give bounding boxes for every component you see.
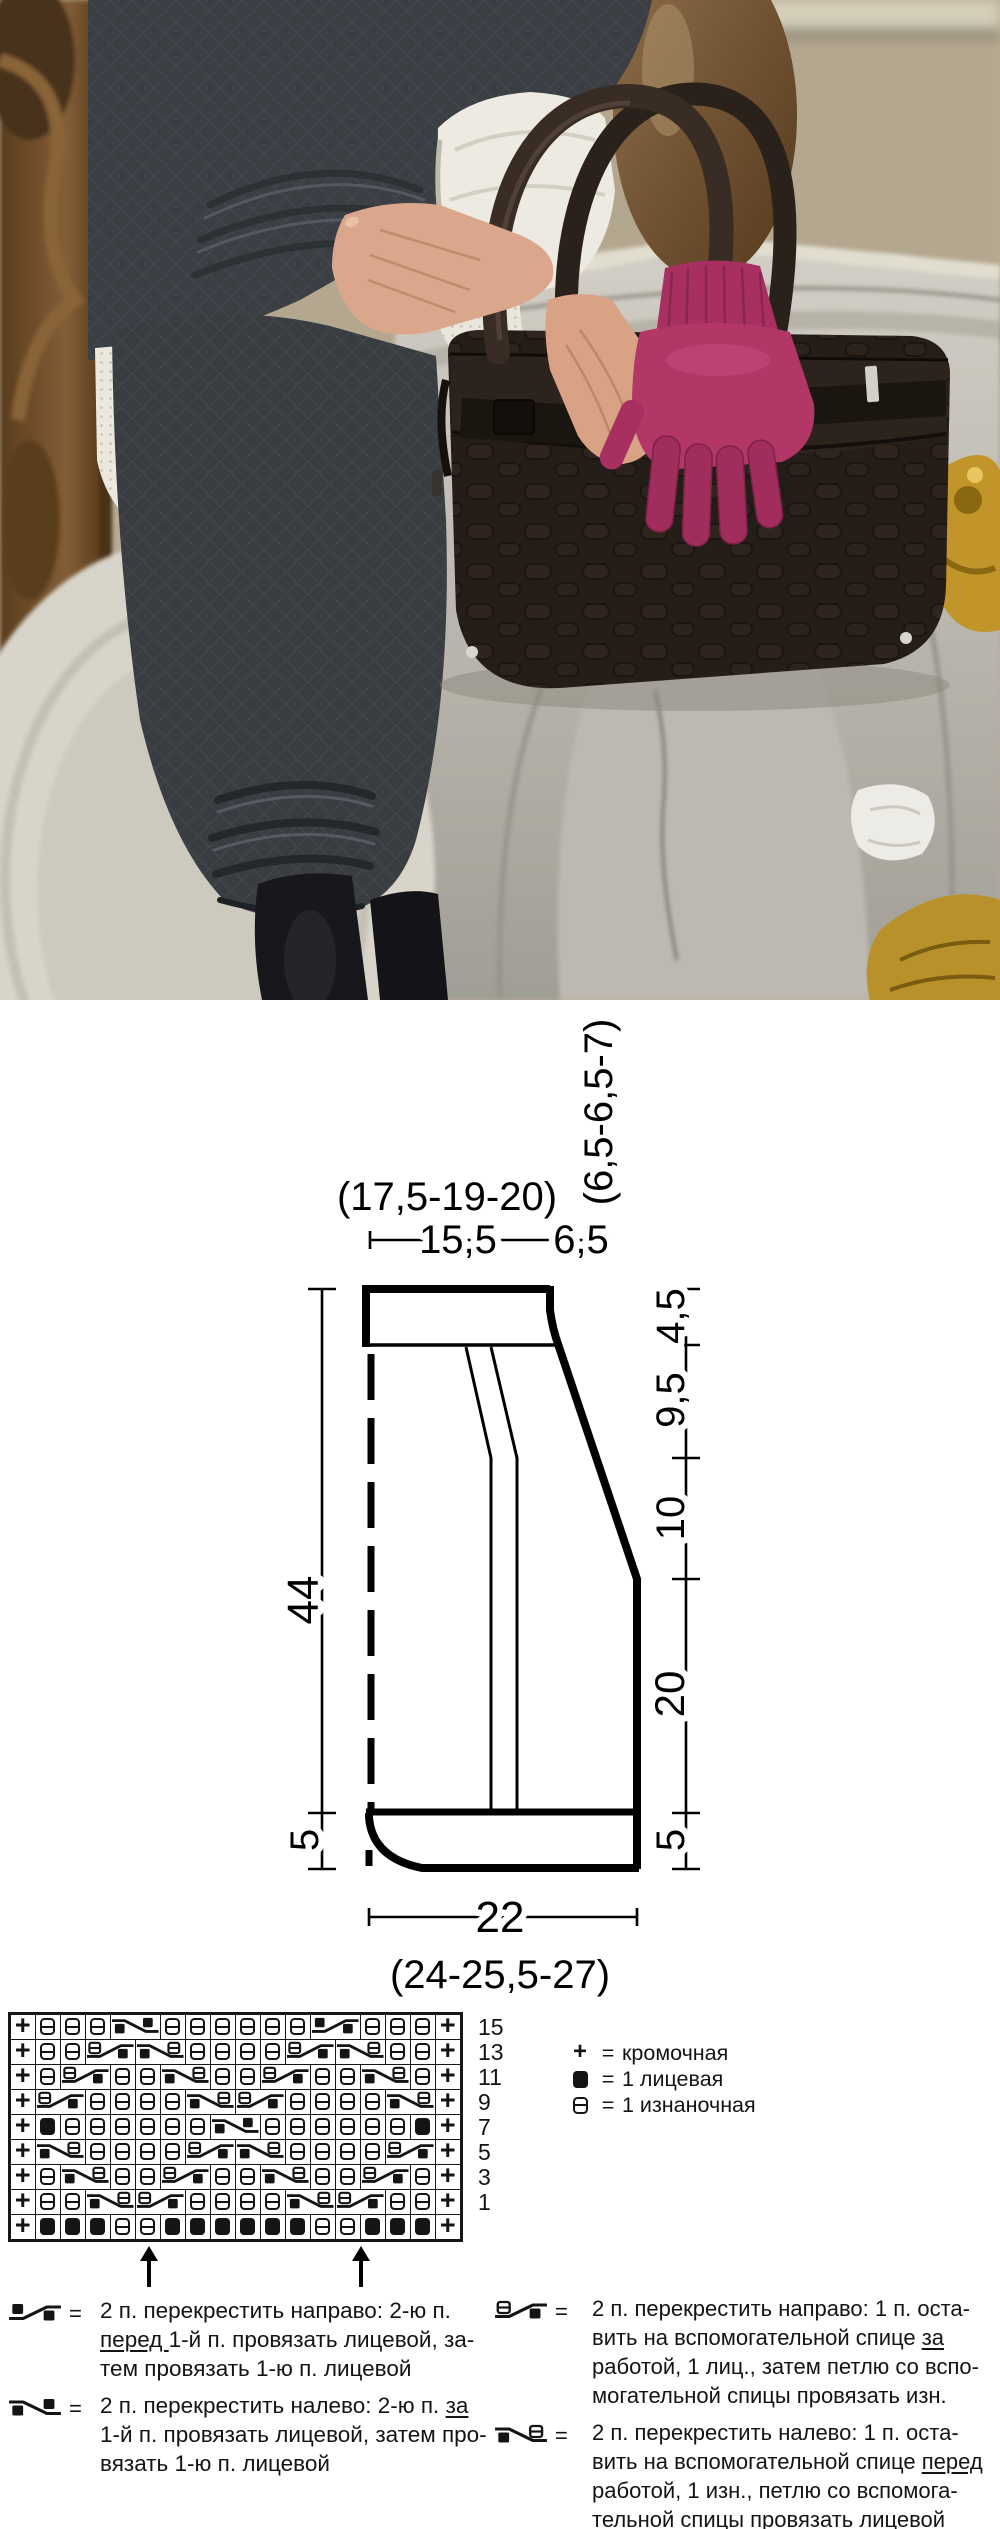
chart-cell-lpc [286,2190,335,2214]
chart-cell-e: + [11,2040,35,2064]
chart-row-numbers: 15131197531 [478,2012,538,2244]
chart-cell-p [236,2190,260,2214]
chart-cell-k [211,2215,235,2239]
chart-cell-p [86,2090,110,2114]
chart-cell-p [361,2090,385,2114]
chart-cell-e: + [11,2115,35,2139]
purl-stitch-icon [573,2097,588,2114]
chart-cell-p [286,2140,310,2164]
chart-cell-p [261,2015,285,2039]
chart-cell-p [311,2215,335,2239]
legend-label: 1 лицевая [622,2067,723,2092]
chart-cell-p [236,2015,260,2039]
chart-cell-e: + [11,2165,35,2189]
chart-cell-e: + [436,2065,460,2089]
chart-cell-p [336,2140,360,2164]
instruction-text: 2 п. перекрестить налево: 2-ю п. за1-й п… [100,2391,487,2478]
chart-cell-p [136,2065,160,2089]
chart-cell-p [411,2165,435,2189]
chart-cell-e: + [436,2190,460,2214]
dim-left-hem: 5 [283,1829,327,1851]
chart-cell-p [261,2115,285,2139]
legend-item-purl: = 1 изнаночная [566,2092,756,2118]
chart-cell-e: + [436,2090,460,2114]
chart-cell-p [186,2190,210,2214]
dim-top-shoulder: 6,5 [553,1218,609,1262]
chart-cell-p [211,2015,235,2039]
chart-cell-p [136,2140,160,2164]
chart-cell-k [386,2215,410,2239]
edge-stitch-icon: + [573,2040,587,2064]
chart-cell-k [186,2215,210,2239]
chart-cell-e: + [11,2015,35,2039]
chart-cell-lpc [236,2140,285,2164]
cable-symbol-icon: = [494,2294,592,2326]
chart-cell-rpc [61,2065,110,2089]
dim-right-middle: 10 [649,1496,693,1541]
knitting-pattern-page: (17,5-19-20) 15,5 6,5 (6,5-6,5-7) 4,5 9,… [0,0,1000,2529]
chart-cell-e: + [11,2090,35,2114]
chart-cell-p [111,2065,135,2089]
chart-cell-p [36,2165,60,2189]
chart-cell-lpc [261,2165,310,2189]
chart-cell-p [61,2190,85,2214]
dim-left-height: 44 [279,1576,328,1625]
chart-cell-e: + [11,2140,35,2164]
sleeve-schematic-section: (17,5-19-20) 15,5 6,5 (6,5-6,5-7) 4,5 9,… [0,1000,1000,2010]
legend-label: кромочная [622,2041,728,2066]
chart-cell-p [386,2015,410,2039]
chart-cell-p [111,2090,135,2114]
sleeve-schematic: (17,5-19-20) 15,5 6,5 (6,5-6,5-7) 4,5 9,… [0,1000,1000,2010]
chart-cell-rc [311,2015,360,2039]
cable-symbol-icon: = [8,2296,100,2328]
size-label-bottom: (24-25,5-27) [390,1953,610,1997]
chart-cell-k [361,2215,385,2239]
chart-cell-lpc [386,2090,435,2114]
chart-cell-p [311,2115,335,2139]
size-label-top: (17,5-19-20) [337,1175,557,1219]
chart-cell-p [111,2165,135,2189]
chart-cell-p [311,2065,335,2089]
chart-cell-p [161,2115,185,2139]
chart-cell-p [61,2040,85,2064]
chart-cell-p [386,2190,410,2214]
chart-cell-p [411,2065,435,2089]
chart-cell-e: + [11,2065,35,2089]
chart-cell-p [361,2015,385,2039]
chart-cell-rpc [161,2165,210,2189]
chart-cell-p [261,2040,285,2064]
chart-cell-e: + [436,2040,460,2064]
chart-cell-p [161,2015,185,2039]
chart-cell-lc [111,2015,160,2039]
chart-cell-rpc [386,2140,435,2164]
chart-cell-p [336,2215,360,2239]
instruction-text: 2 п. перекрестить направо: 1 п. оста-вит… [592,2294,979,2410]
chart-cell-k [261,2215,285,2239]
chart-cell-lc [211,2115,260,2139]
chart-cell-p [311,2090,335,2114]
instruction-text: 2 п. перекрестить направо: 2-ю п.перед 1… [100,2296,474,2383]
chart-cell-p [136,2115,160,2139]
chart-cell-p [361,2140,385,2164]
chart-cell-p [36,2065,60,2089]
dim-top-width: 15,5 [419,1218,497,1262]
chart-cell-k [61,2215,85,2239]
stitch-instruction-lpc: =2 п. перекрестить налево: 1 п. оста-вит… [494,2418,996,2529]
chart-cell-e: + [11,2190,35,2214]
chart-cell-e: + [11,2215,35,2239]
chart-cell-k [411,2115,435,2139]
legend-label: 1 изнаночная [622,2093,756,2118]
chart-cell-p [361,2115,385,2139]
chart-cell-p [311,2140,335,2164]
bag-stud [466,646,478,658]
chart-cell-p [161,2140,185,2164]
chart-cell-p [136,2090,160,2114]
chart-cell-p [386,2040,410,2064]
chart-cell-p [86,2115,110,2139]
chart-row-number: 3 [478,2165,491,2190]
chart-cell-p [211,2165,235,2189]
chart-cell-k [86,2215,110,2239]
repeat-arrow-right [352,2246,370,2287]
chart-cell-lpc [361,2065,410,2089]
chart-cell-p [36,2190,60,2214]
chart-cell-p [336,2115,360,2139]
chart-cell-p [36,2040,60,2064]
chart-cell-p [36,2015,60,2039]
chart-cell-rpc [36,2090,85,2114]
chart-cell-p [186,2015,210,2039]
dim-right-hem: 5 [649,1829,693,1851]
size-label-side: (6,5-6,5-7) [577,1019,621,1206]
chart-cell-lpc [186,2090,235,2114]
chart-cell-p [61,2115,85,2139]
chart-cell-lpc [161,2065,210,2089]
chart-cell-rpc [336,2190,385,2214]
instruction-text: 2 п. перекрестить налево: 1 п. оста-вить… [592,2418,983,2529]
chart-cell-k [411,2215,435,2239]
chart-row-number: 11 [478,2065,502,2090]
chart-cell-p [136,2165,160,2189]
chart-cell-p [211,2190,235,2214]
dim-right-upper: 9,5 [649,1372,693,1428]
chart-row-number: 9 [478,2090,491,2115]
chart-cell-rpc [286,2040,335,2064]
legend-item-edge: + = кромочная [566,2040,756,2066]
chart-cell-p [336,2165,360,2189]
chart-cell-rpc [361,2165,410,2189]
chart-cell-p [336,2065,360,2089]
chart-cell-p [161,2090,185,2114]
chart-cell-e: + [436,2215,460,2239]
chart-cell-k [36,2215,60,2239]
chart-cell-rpc [236,2090,285,2114]
chart-cell-lpc [336,2040,385,2064]
chart-legend: + = кромочная = 1 лицевая = 1 изнаночная [566,2040,756,2118]
chart-cell-p [136,2215,160,2239]
chart-cell-p [186,2040,210,2064]
chart-cell-p [411,2190,435,2214]
chart-cell-p [286,2015,310,2039]
chart-cell-lpc [36,2140,85,2164]
knit-stitch-icon [573,2071,588,2088]
chart-cell-e: + [436,2165,460,2189]
chart-cell-k [36,2115,60,2139]
chart-cell-p [286,2115,310,2139]
chart-cell-lpc [86,2190,135,2214]
chart-cell-p [336,2090,360,2114]
chart-cell-k [286,2215,310,2239]
chart-cell-e: + [436,2015,460,2039]
chart-cell-p [386,2115,410,2139]
chart-cell-p [111,2140,135,2164]
dim-bottom-width: 22 [476,1893,525,1942]
knitting-chart-grid: ++++++++++++++++++ [8,2012,463,2242]
instructions-right-column: =2 п. перекрестить направо: 1 п. оста-ви… [494,2294,996,2529]
chart-cell-rpc [261,2065,310,2089]
stitch-instruction-rc: =2 п. перекрестить направо: 2-ю п.перед … [8,2296,476,2383]
chart-cell-p [61,2015,85,2039]
chart-cell-p [236,2165,260,2189]
plastic-scrap [851,784,935,860]
instructions-left-column: =2 п. перекрестить направо: 2-ю п.перед … [8,2296,476,2478]
fashion-photo [0,0,1000,1000]
chart-cell-k [236,2215,260,2239]
chart-cell-p [211,2065,235,2089]
chart-row-number: 7 [478,2115,491,2140]
chart-cell-rpc [86,2040,135,2064]
chart-cell-p [211,2040,235,2064]
dim-right-top: 4,5 [649,1288,693,1344]
schematic-outline [366,1286,639,1869]
bag-stud [900,632,912,644]
chart-cell-p [411,2015,435,2039]
chart-cell-rpc [186,2140,235,2164]
chart-cell-e: + [436,2140,460,2164]
chart-cell-rpc [136,2190,185,2214]
cable-symbol-icon: = [8,2391,100,2423]
stitch-instruction-rpc: =2 п. перекрестить направо: 1 п. оста-ви… [494,2294,996,2410]
dim-right-lower: 20 [646,1671,693,1718]
chart-cell-lpc [61,2165,110,2189]
chart-row-number: 13 [478,2040,504,2065]
legend-item-knit: = 1 лицевая [566,2066,756,2092]
chart-cell-p [111,2115,135,2139]
tights [255,873,448,1000]
cable-symbol-icon: = [494,2418,592,2450]
chart-cell-e: + [436,2115,460,2139]
stitch-instruction-lc: =2 п. перекрестить налево: 2-ю п. за1-й … [8,2391,476,2478]
chart-cell-lpc [136,2040,185,2064]
chart-cell-p [261,2190,285,2214]
repeat-arrow-left [140,2246,158,2287]
photo-illustration [0,0,1000,1000]
chart-cell-p [236,2065,260,2089]
chart-cell-k [161,2215,185,2239]
chart-row-number: 5 [478,2140,491,2165]
chart-row-number: 1 [478,2190,491,2215]
chart-cell-p [311,2165,335,2189]
chart-cell-p [86,2015,110,2039]
bag-keeper-right [865,366,879,403]
chart-cell-p [236,2040,260,2064]
chart-cell-p [86,2140,110,2164]
chart-row-number: 15 [478,2015,504,2040]
chart-cell-p [111,2215,135,2239]
chart-cell-p [411,2040,435,2064]
chart-cell-p [286,2090,310,2114]
chart-cell-p [186,2115,210,2139]
